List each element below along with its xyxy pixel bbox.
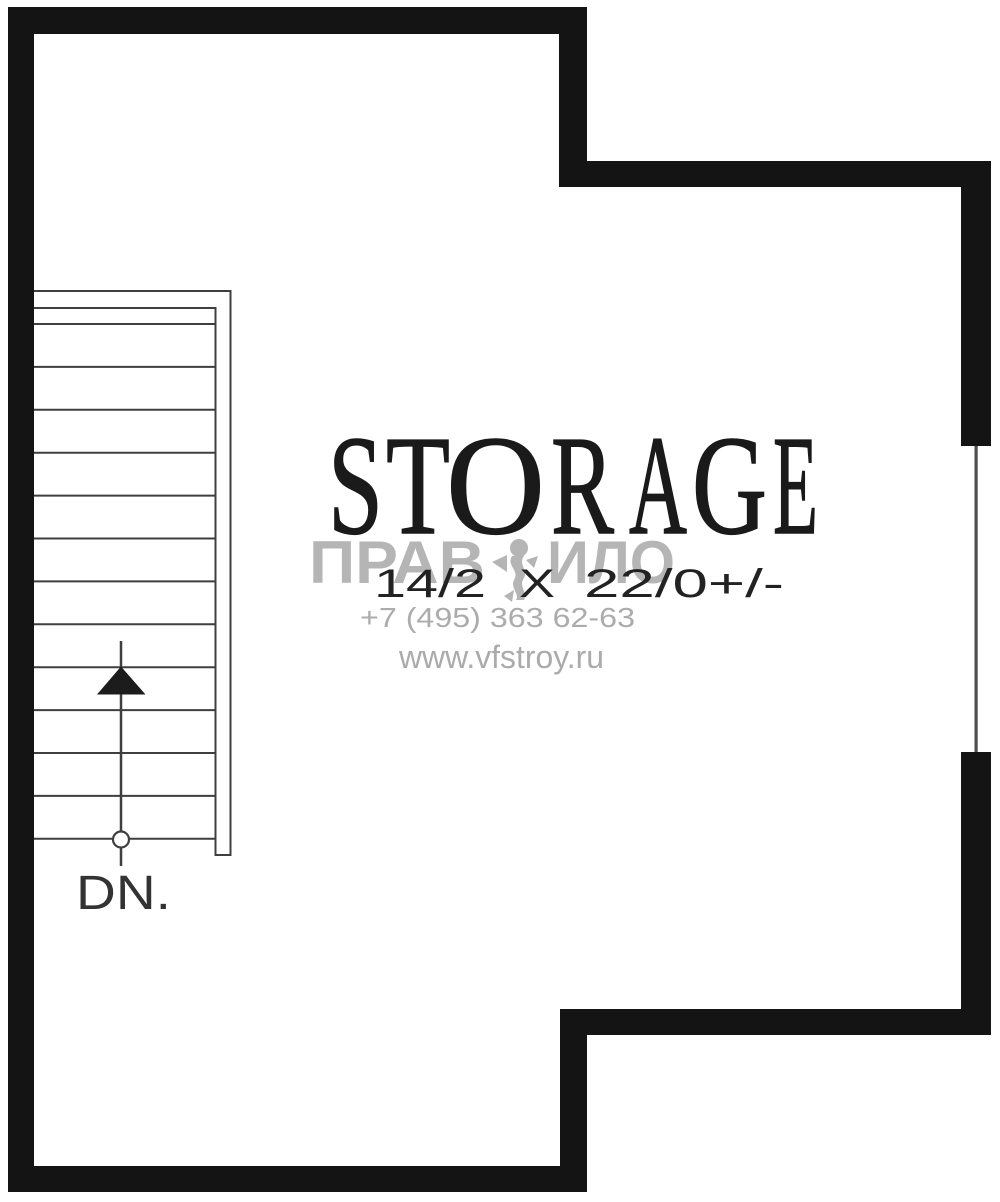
svg-text:DN.: DN. xyxy=(76,867,171,920)
svg-text:G: G xyxy=(692,406,767,564)
svg-text:www.vfstroy.ru: www.vfstroy.ru xyxy=(398,639,604,675)
svg-text:22/0+/-: 22/0+/- xyxy=(584,562,784,606)
svg-text:+7 (495) 363 62-63: +7 (495) 363 62-63 xyxy=(360,602,635,633)
svg-text:E: E xyxy=(773,406,818,564)
svg-text:14/2: 14/2 xyxy=(374,562,486,606)
svg-text:X: X xyxy=(519,562,555,606)
